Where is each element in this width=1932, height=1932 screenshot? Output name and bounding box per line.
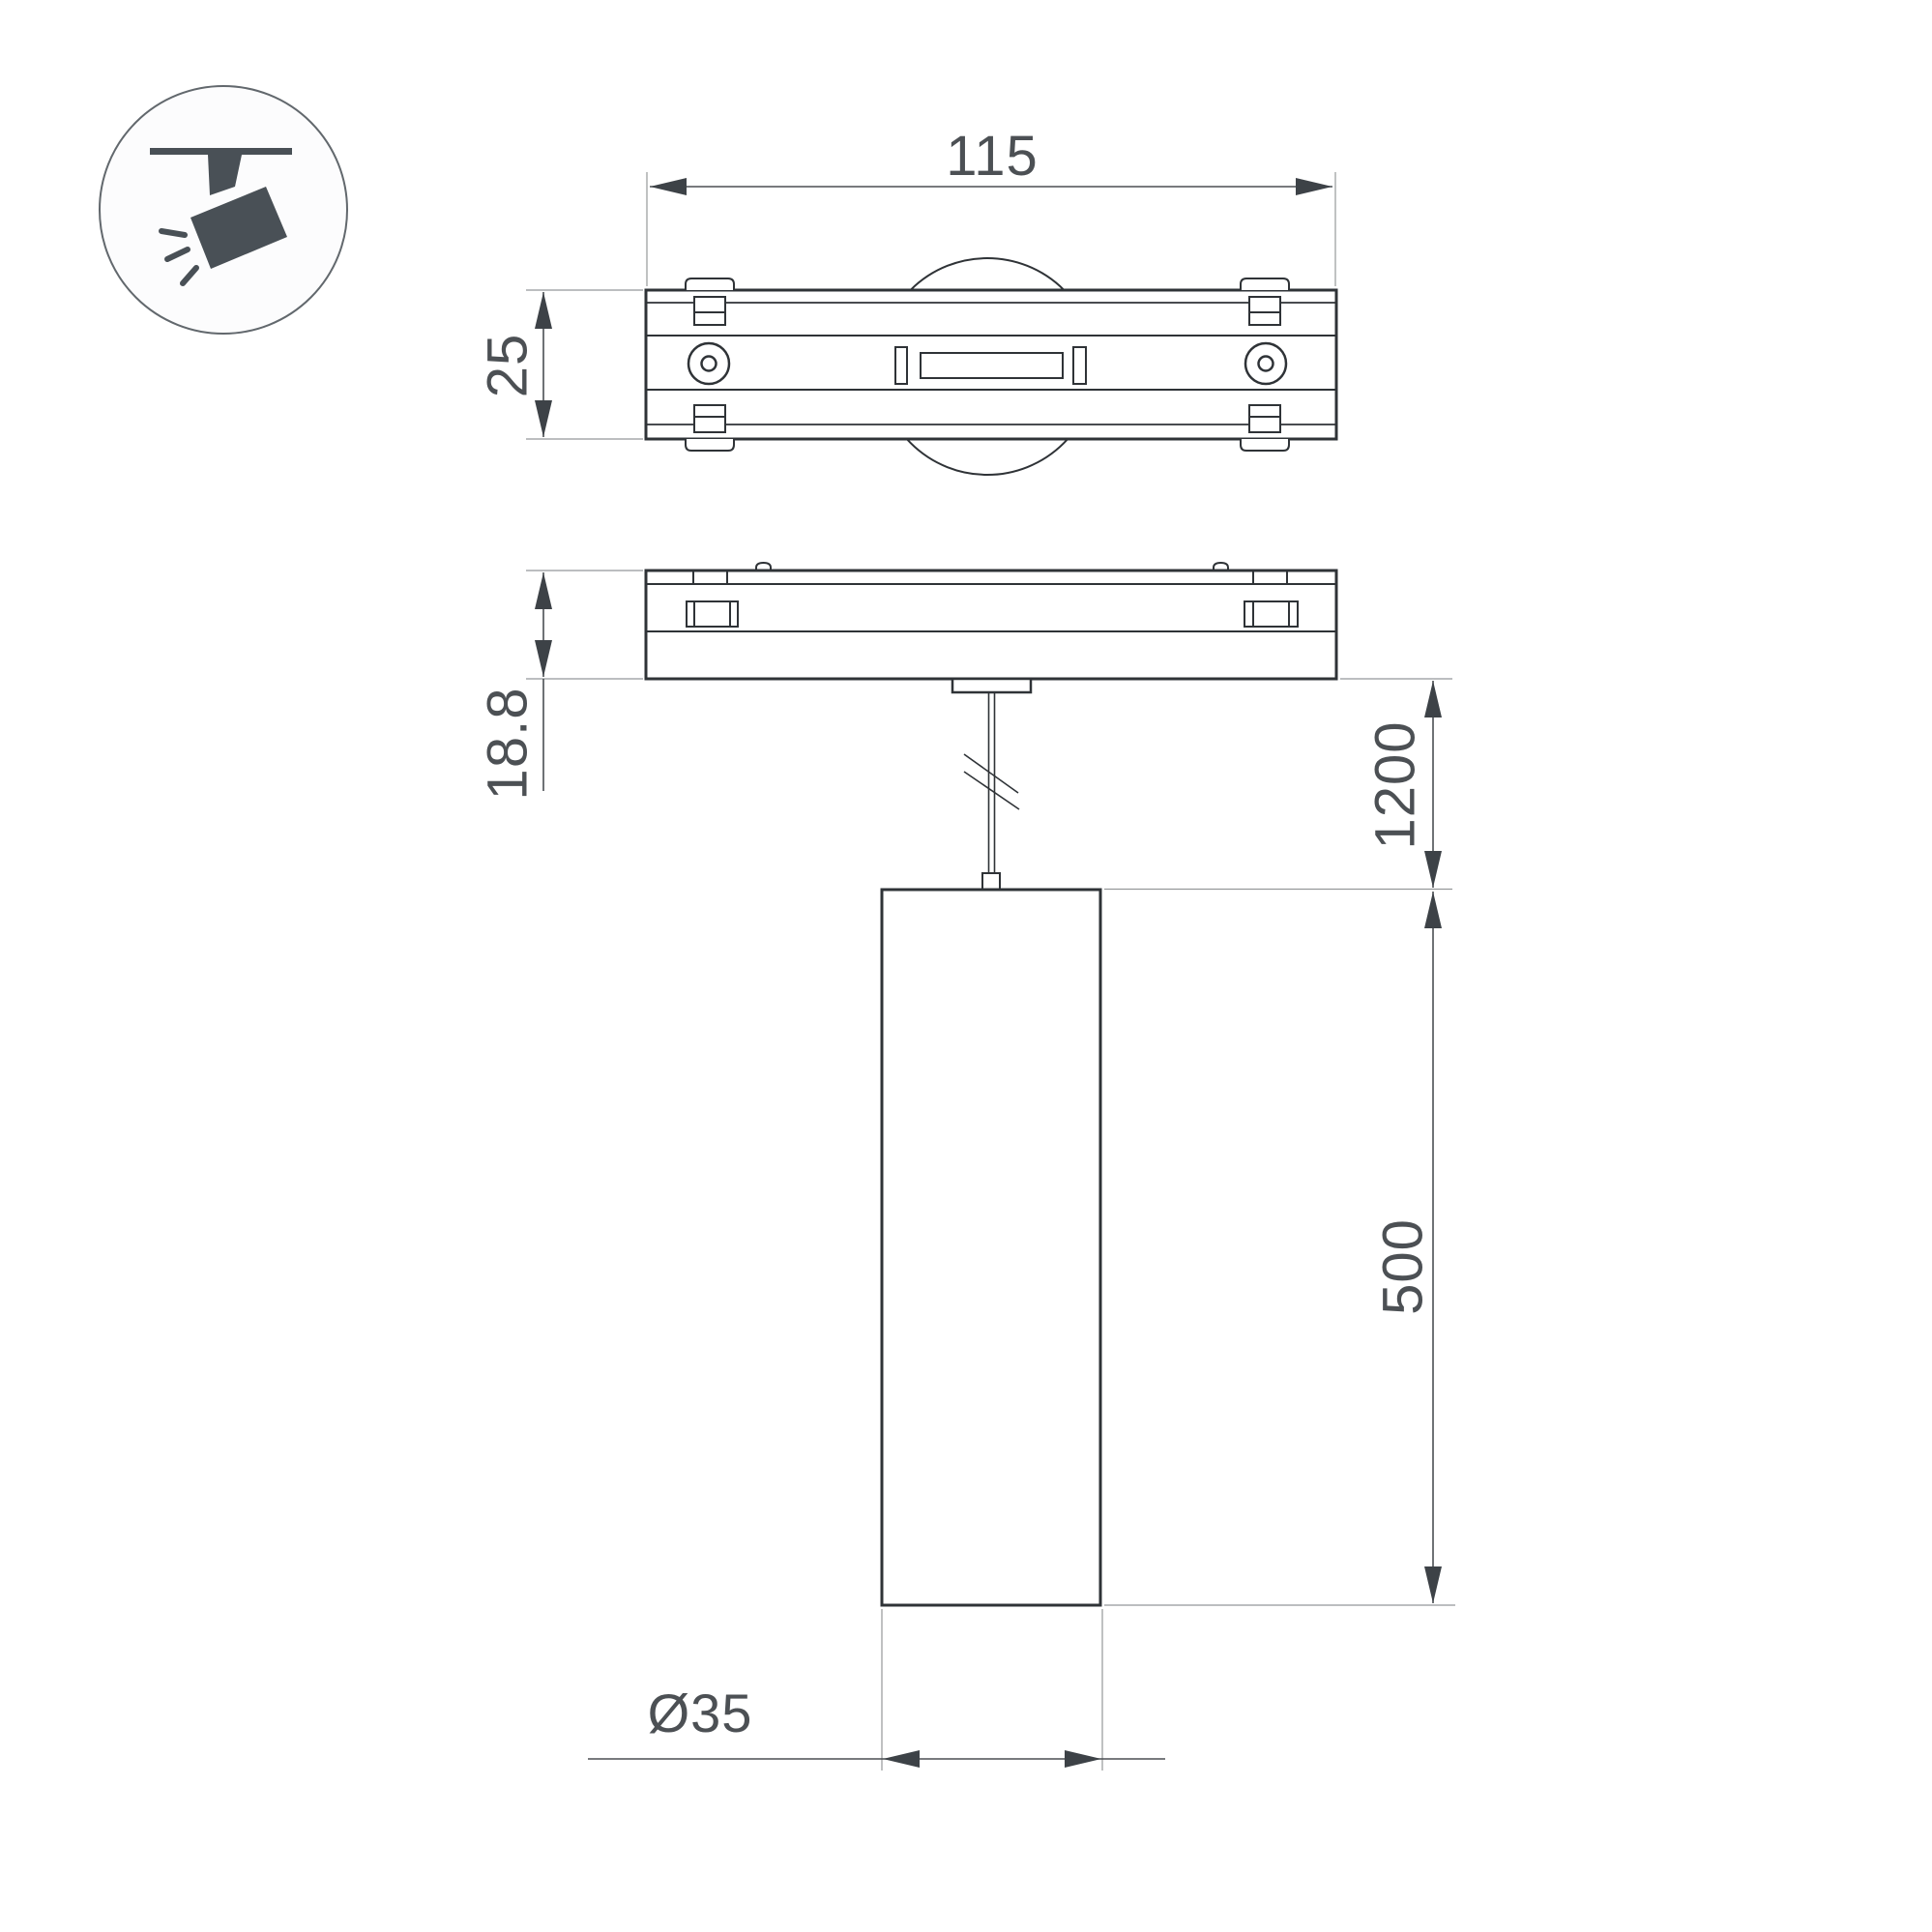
wire-ferrule [982, 873, 1000, 890]
arrowhead [1424, 1566, 1442, 1603]
dimension-suspension: 1200 [1104, 679, 1452, 890]
arrowhead [650, 178, 687, 195]
technical-drawing-canvas: 115 25 [0, 0, 1932, 1932]
top-view [646, 258, 1336, 475]
dimension-pendant-length: 500 [1104, 892, 1455, 1605]
arrowhead [1296, 178, 1332, 195]
arrowhead [883, 1750, 920, 1768]
dim-label-suspension: 1200 [1363, 720, 1426, 849]
arrowhead [1424, 851, 1442, 888]
dim-label-track-width: 115 [946, 125, 1038, 188]
adapter-body-top [646, 290, 1336, 439]
pendant-cylinder [882, 890, 1100, 1605]
arrowhead [535, 572, 552, 609]
cable-break-icon [964, 754, 1019, 809]
dimension-track-width: 115 [647, 125, 1335, 286]
product-icon [100, 86, 347, 334]
track-bar [150, 148, 292, 155]
arrowhead [535, 640, 552, 677]
arrowhead [535, 292, 552, 329]
dimension-adapter-height: 18.8 [476, 571, 643, 800]
dim-label-adapter-height: 18.8 [476, 688, 539, 801]
dimension-track-depth: 25 [476, 290, 643, 439]
suspension-wire [989, 692, 995, 873]
dim-label-track-depth: 25 [476, 334, 539, 398]
arrowhead [535, 400, 552, 437]
arrowhead [1424, 892, 1442, 928]
dimension-diameter: Ø35 [588, 1609, 1165, 1771]
dim-label-diameter: Ø35 [648, 1683, 753, 1743]
arrowhead [1424, 681, 1442, 717]
side-view [646, 563, 1336, 1605]
suspension-plate [952, 679, 1031, 692]
dim-label-pendant-length: 500 [1371, 1218, 1434, 1315]
arrowhead [1065, 1750, 1101, 1768]
adapter-body-side [646, 571, 1336, 679]
